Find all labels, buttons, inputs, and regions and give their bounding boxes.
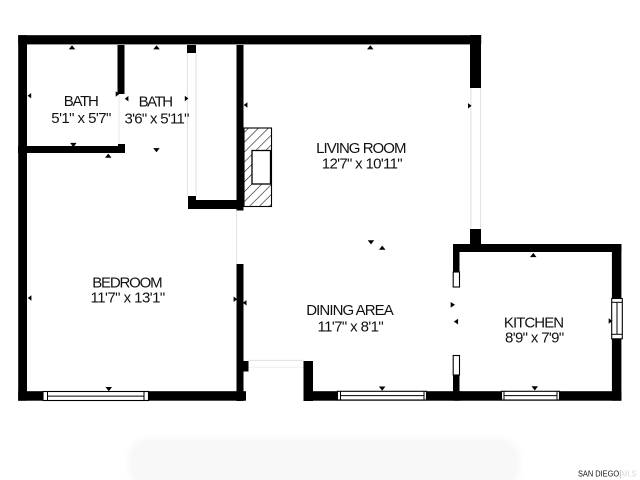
svg-text:8'9" x 7'9": 8'9" x 7'9": [505, 330, 564, 347]
svg-text:12'7" x 10'11": 12'7" x 10'11": [322, 155, 403, 172]
svg-text:5'1" x 5'7": 5'1" x 5'7": [51, 110, 111, 127]
svg-text:11'7" x 8'1": 11'7" x 8'1": [317, 318, 383, 335]
svg-text:BATH: BATH: [64, 93, 99, 110]
svg-text:11'7" x 13'1": 11'7" x 13'1": [91, 289, 166, 306]
svg-text:SAN DIEGO|MLS: SAN DIEGO|MLS: [578, 469, 637, 479]
svg-text:LIVING ROOM: LIVING ROOM: [316, 140, 406, 157]
svg-text:BATH: BATH: [139, 93, 174, 110]
svg-text:DINING AREA: DINING AREA: [306, 302, 394, 319]
svg-text:3'6" x 5'11": 3'6" x 5'11": [125, 110, 190, 127]
